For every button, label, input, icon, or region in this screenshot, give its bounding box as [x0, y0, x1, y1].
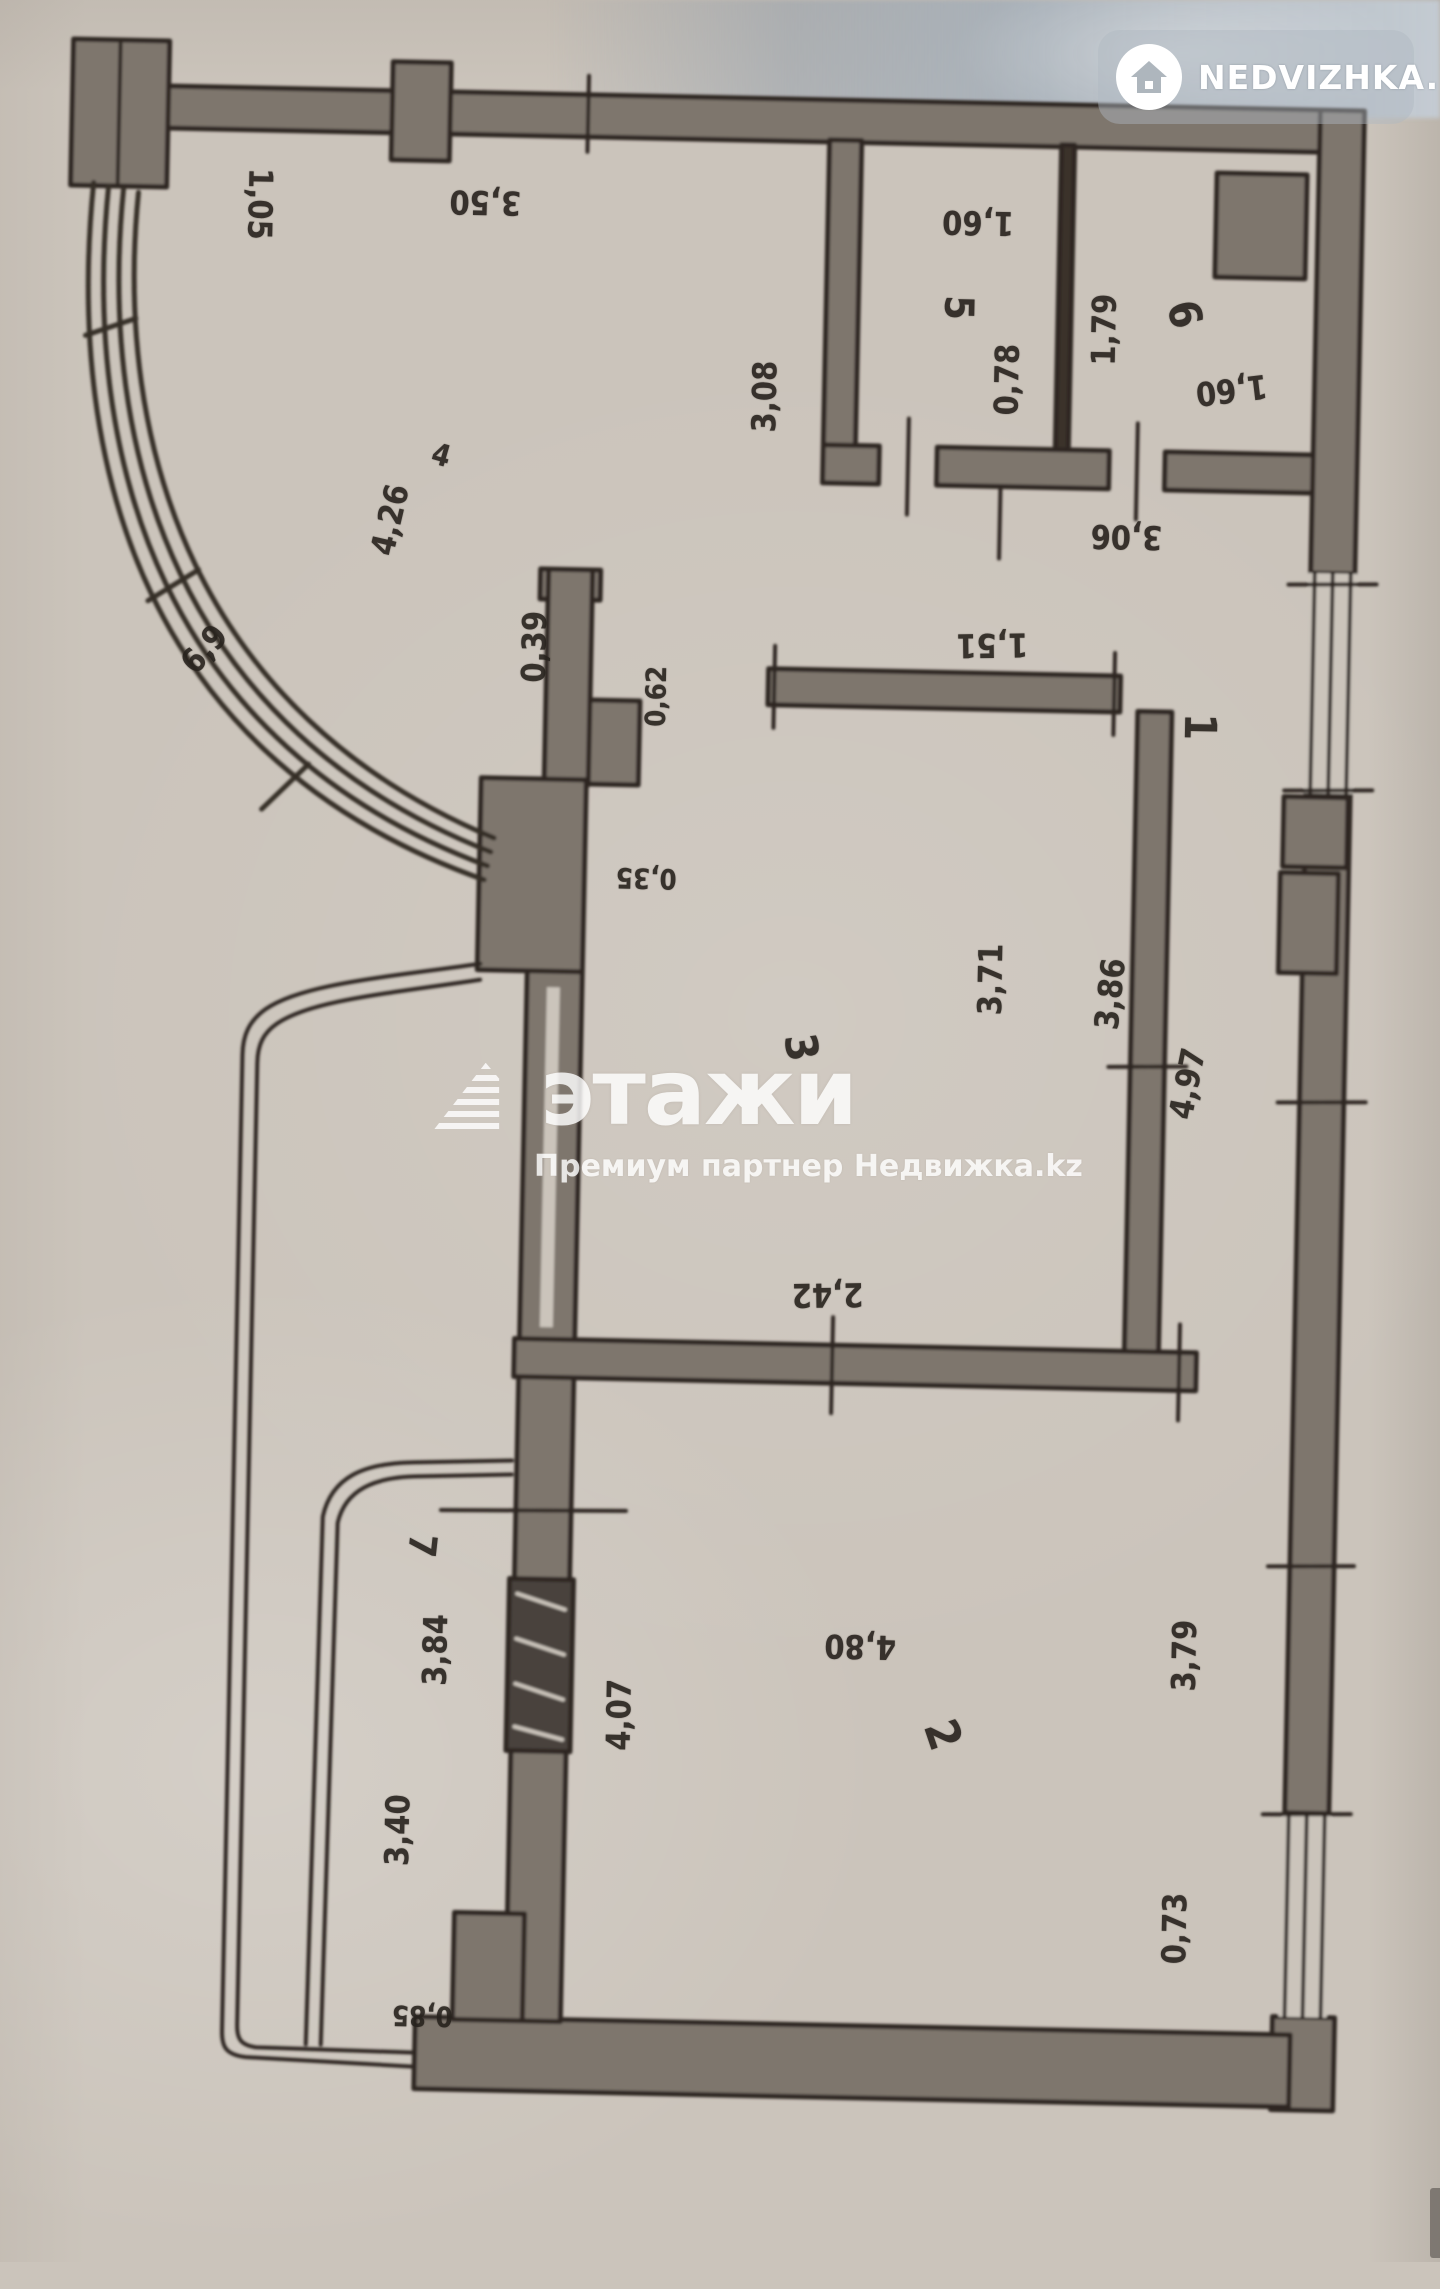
floor-plan-svg — [0, 0, 1440, 2289]
wall-pillar — [1283, 797, 1348, 868]
wall-pillar — [1215, 173, 1307, 279]
terrace-railing — [221, 959, 480, 2068]
nedvizhka-logo-badge: NEDVIZHKA.KZ — [1098, 30, 1414, 124]
wall-pillar — [1278, 872, 1338, 973]
photo-edge-mark — [1430, 2188, 1440, 2258]
wall-pillar — [477, 778, 586, 972]
interior-walls — [452, 133, 1319, 2037]
nedvizhka-logo-text: NEDVIZHKA.KZ — [1198, 58, 1440, 97]
right-wall — [1311, 110, 1365, 574]
wall-pillar — [391, 62, 451, 161]
house-icon — [1116, 44, 1182, 110]
floor-plan: 45613271,053,503,081,600,781,791,603,061… — [0, 0, 1440, 2289]
bay-window-arc — [74, 182, 507, 880]
outer-walls — [31, 39, 1376, 2111]
bottom-wall — [414, 2017, 1290, 2107]
screenshot-root: { "page_title": "Floor plan photo", "log… — [0, 0, 1440, 2262]
wall-pillar — [452, 1912, 524, 2020]
